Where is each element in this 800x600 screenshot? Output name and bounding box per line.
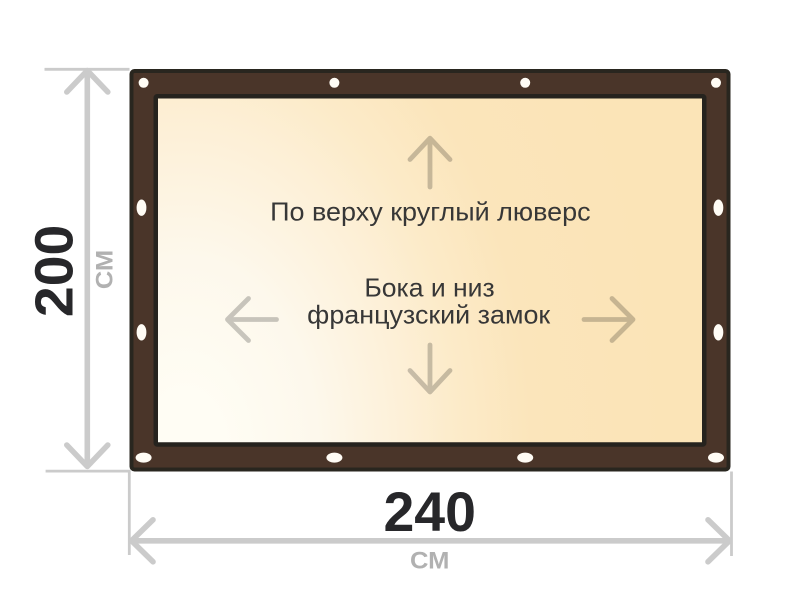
svg-text:французский замок: французский замок <box>307 299 551 329</box>
svg-text:СМ: СМ <box>410 547 449 574</box>
svg-text:СМ: СМ <box>92 250 119 289</box>
svg-text:240: 240 <box>383 480 476 543</box>
svg-text:200: 200 <box>25 225 85 318</box>
svg-text:По верху круглый люверс: По верху круглый люверс <box>270 197 591 227</box>
svg-text:Бока и низ: Бока и низ <box>364 273 494 303</box>
